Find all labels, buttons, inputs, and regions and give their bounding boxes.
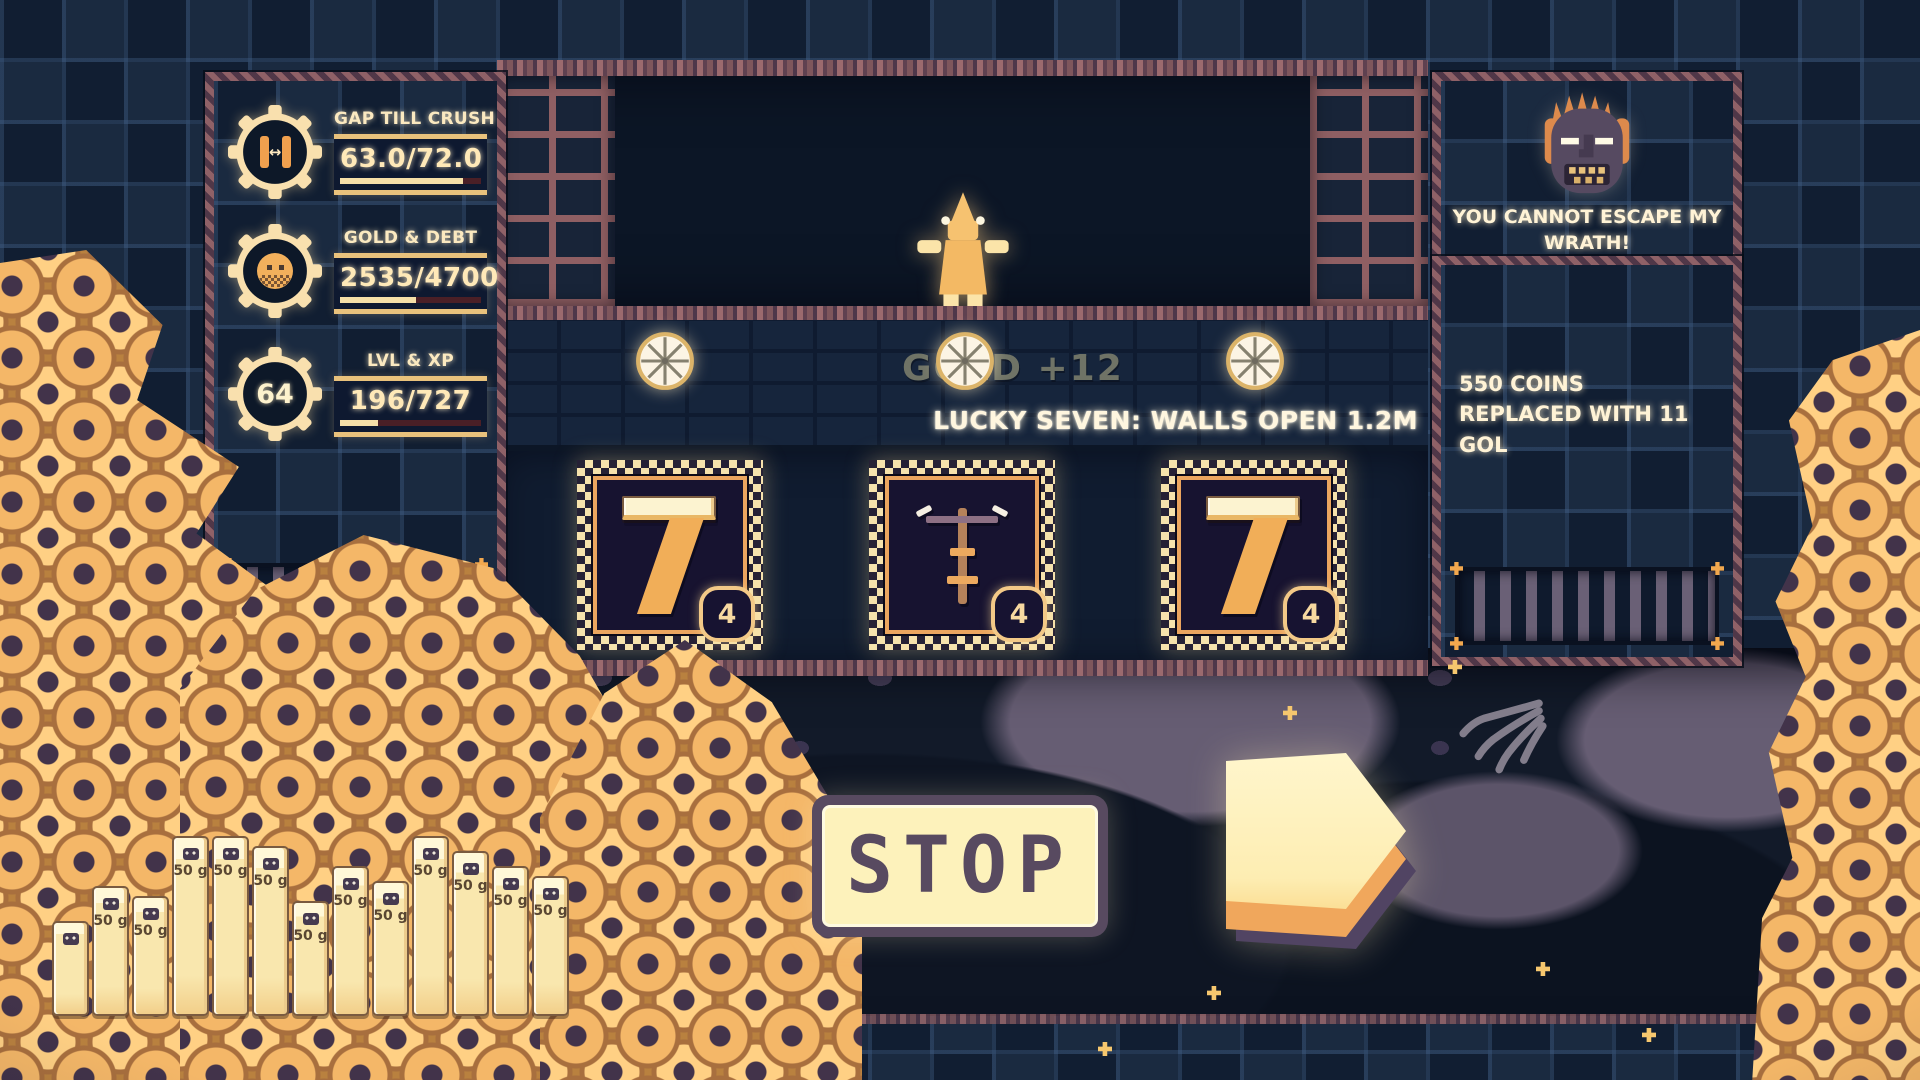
gold-bar-face-icon (303, 913, 319, 925)
vent-grille (1455, 567, 1719, 645)
gold-bar: 50 g (332, 866, 369, 1016)
gold-bar-weight-label: 50 g (293, 928, 327, 944)
wheel-ornament-icon (934, 330, 996, 392)
stat-gold-debt: GOLD & DEBT 2535/4700 (228, 224, 487, 318)
wheel-ornament-icon (1224, 330, 1286, 392)
gold-bar-weight-label: 50 g (133, 923, 167, 939)
stat-gap: ↔ GAP TILL CRUSH 63.0/72.0 (228, 105, 487, 199)
brick-pillar-right (1310, 76, 1428, 306)
gold-bar-face-icon (423, 848, 439, 860)
stat-plate: 2535/4700 (334, 253, 487, 314)
stat-value: 2535/4700 (340, 263, 481, 293)
gold-bar-weight-label: 50 g (173, 863, 207, 879)
stat-plate: 196/727 (334, 376, 487, 437)
reel-count-badge: 4 (991, 586, 1047, 642)
reel-count-badge: 4 (699, 586, 755, 642)
brick-pillar-left (497, 76, 615, 306)
gold-bar-face-icon (503, 878, 519, 890)
gold-bar-weight-label: 50 g (453, 878, 487, 894)
stat-plate: 63.0/72.0 (334, 134, 487, 195)
game-screen: GOLD +12 4 (0, 0, 1920, 1080)
info-panel: 550 COINS REPLACED WITH 11 GOL (1432, 256, 1742, 666)
gap-gauge-icon: ↔ (228, 105, 322, 199)
gold-bar-weight-label: 50 g (533, 903, 567, 919)
slot-reel-2: 4 (869, 460, 1055, 650)
gold-bar: 50 g (172, 836, 209, 1016)
wrath-face-icon (1535, 89, 1639, 203)
gold-bar: 50 g (252, 846, 289, 1016)
wrath-message: YOU CANNOT ESCAPE MY WRATH! (1451, 205, 1723, 256)
slot-reel-1: 4 (577, 460, 763, 650)
gold-bar-face-icon (463, 863, 479, 875)
slot-machine: GOLD +12 4 (497, 60, 1428, 676)
gold-bar: 50 g (532, 876, 569, 1016)
gold-bar: 50 g (92, 886, 129, 1016)
gap-progress-bar (340, 178, 481, 184)
gold-bar-face-icon (103, 898, 119, 910)
debt-coin-icon (228, 224, 322, 318)
stat-label: GOLD & DEBT (334, 228, 487, 248)
machine-top-ornament (497, 60, 1428, 76)
machine-doorway (497, 76, 1428, 306)
gold-bar-weight-label: 50 g (413, 863, 447, 879)
xp-progress-bar (340, 420, 481, 426)
wrath-panel: YOU CANNOT ESCAPE MY WRATH! (1432, 72, 1742, 282)
gold-bar-face-icon (263, 858, 279, 870)
gold-bar-weight-label: 50 g (493, 893, 527, 909)
stat-label: LVL & XP (334, 351, 487, 371)
gold-bar-face-icon (143, 908, 159, 920)
stop-button[interactable]: STOP (812, 795, 1108, 937)
gnome-character (913, 190, 1013, 312)
gold-bar: 50 g (292, 901, 329, 1016)
gold-bar-face-icon (63, 933, 79, 945)
gold-bar (52, 921, 89, 1016)
gold-bar: 50 g (412, 836, 449, 1016)
gold-bar: 50 g (132, 896, 169, 1016)
machine-ledge-ornament (497, 306, 1428, 320)
gold-bar: 50 g (372, 881, 409, 1016)
level-badge-icon: 64 (228, 347, 322, 441)
stat-value: 196/727 (340, 386, 481, 416)
gold-bar-weight-label: 50 g (93, 913, 127, 929)
gold-bar-weight-label: 50 g (373, 908, 407, 924)
stat-value: 63.0/72.0 (340, 144, 481, 174)
gold-bars: 50 g50 g50 g50 g50 g50 g50 g50 g50 g50 g… (52, 836, 592, 1016)
stat-label: GAP TILL CRUSH (334, 109, 487, 129)
reel-deck: 4 4 4 (497, 445, 1428, 666)
gold-bar-face-icon (343, 878, 359, 890)
gold-progress-bar (340, 297, 481, 303)
info-message: 550 COINS REPLACED WITH 11 GOL (1459, 369, 1699, 460)
level-number: 64 (256, 379, 294, 410)
wheel-ornament-icon (634, 330, 696, 392)
stop-button-label: STOP (822, 805, 1098, 927)
gold-bar-face-icon (223, 848, 239, 860)
gold-bar-weight-label: 50 g (213, 863, 247, 879)
slot-reel-3: 4 (1161, 460, 1347, 650)
gold-bar: 50 g (452, 851, 489, 1016)
stat-level-xp: 64 LVL & XP 196/727 (228, 347, 487, 441)
gold-bar-face-icon (183, 848, 199, 860)
reel-count-badge: 4 (1283, 586, 1339, 642)
spin-lever-button[interactable] (1198, 735, 1418, 970)
gold-bar-face-icon (543, 888, 559, 900)
gold-bar: 50 g (492, 866, 529, 1016)
skeleton-hand-icon (1455, 690, 1551, 780)
gold-bar: 50 g (212, 836, 249, 1016)
gold-bar-face-icon (383, 893, 399, 905)
gold-bar-weight-label: 50 g (333, 893, 367, 909)
event-banner: LUCKY SEVEN: WALLS OPEN 1.2M (933, 406, 1418, 435)
gold-bar-weight-label: 50 g (253, 873, 287, 889)
